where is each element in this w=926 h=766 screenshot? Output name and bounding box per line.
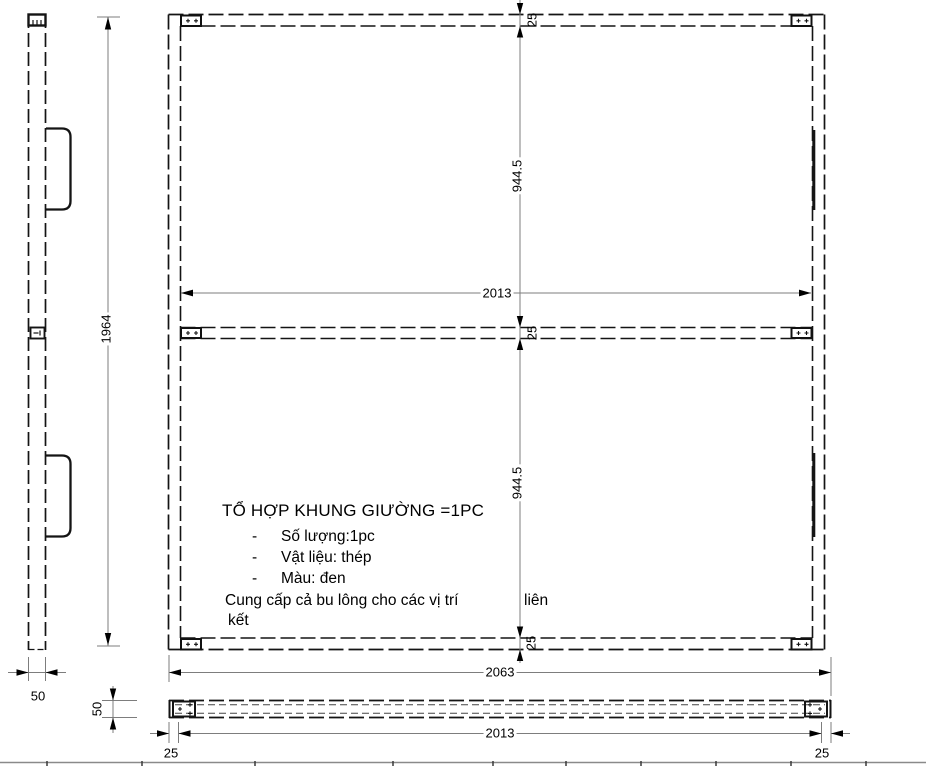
dim-label-end-right: 25 [813, 747, 831, 760]
side-view [29, 14, 71, 650]
note-bolts-wrap: kết [228, 612, 249, 630]
bullet-dash-2: - [252, 549, 257, 567]
dim-label-front-inner-width: 2013 [484, 727, 517, 740]
dim-label-overall-height: 1964 [100, 313, 113, 346]
bullet-dash-1: - [252, 528, 257, 546]
bullet-dash-3: - [252, 570, 257, 588]
dim-label-end-left: 25 [162, 747, 180, 760]
note-item-quantity: Số lượng:1pc [281, 528, 375, 546]
notes-title: TỔ HỢP KHUNG GIƯỜNG =1PC [222, 501, 484, 521]
dim-label-bay-upper: 944.5 [511, 158, 524, 195]
dim-label-inner-width: 2013 [481, 287, 514, 300]
main-view [169, 15, 825, 650]
dim-50-side-geometry [8, 657, 66, 681]
note-item-color: Màu: đen [281, 570, 346, 588]
dim-label-bay-lower: 944.5 [511, 465, 524, 502]
drawing-canvas [0, 0, 926, 766]
bolt-marks [186, 19, 809, 647]
dim-label-rail-bottom: 25 [525, 634, 538, 652]
note-bolts-tail: liên [524, 592, 548, 610]
dim-label-side-width: 50 [29, 690, 47, 703]
note-bolts-main: Cung cấp cả bu lông cho các vị trí [225, 592, 459, 610]
front-view [169, 700, 831, 718]
dim-label-overall-width: 2063 [484, 666, 517, 679]
note-item-material: Vật liệu: thép [281, 549, 371, 567]
dim-label-profile-height: 50 [91, 700, 104, 718]
cad-sheet: 1964 50 25 944.5 25 944.5 25 2013 2063 5… [0, 0, 926, 766]
dim-50-front-geometry [102, 686, 137, 733]
connector-brackets [181, 16, 812, 650]
dim-label-rail-top: 25 [526, 11, 539, 29]
dim-label-rail-mid: 25 [526, 324, 539, 342]
